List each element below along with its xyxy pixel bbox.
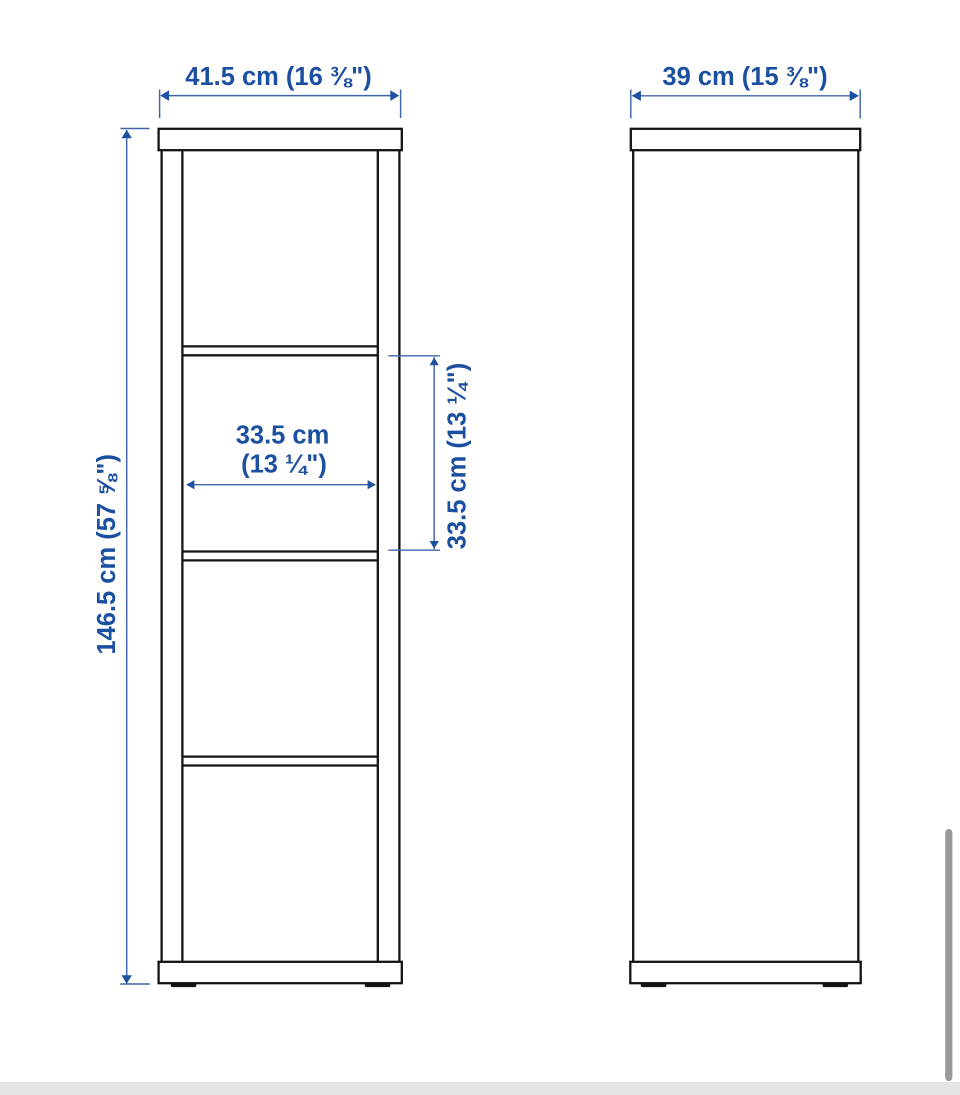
svg-text:146.5 cm (57 ⅝"): 146.5 cm (57 ⅝") (93, 454, 121, 655)
svg-text:33.5 cm (13 ¼"): 33.5 cm (13 ¼") (444, 363, 472, 549)
svg-text:39 cm (15 ⅜"): 39 cm (15 ⅜") (662, 63, 827, 91)
svg-text:41.5 cm (16 ⅜"): 41.5 cm (16 ⅜") (185, 63, 371, 91)
svg-text:(13 ¼"): (13 ¼") (241, 451, 327, 479)
svg-text:33.5 cm: 33.5 cm (236, 422, 330, 450)
